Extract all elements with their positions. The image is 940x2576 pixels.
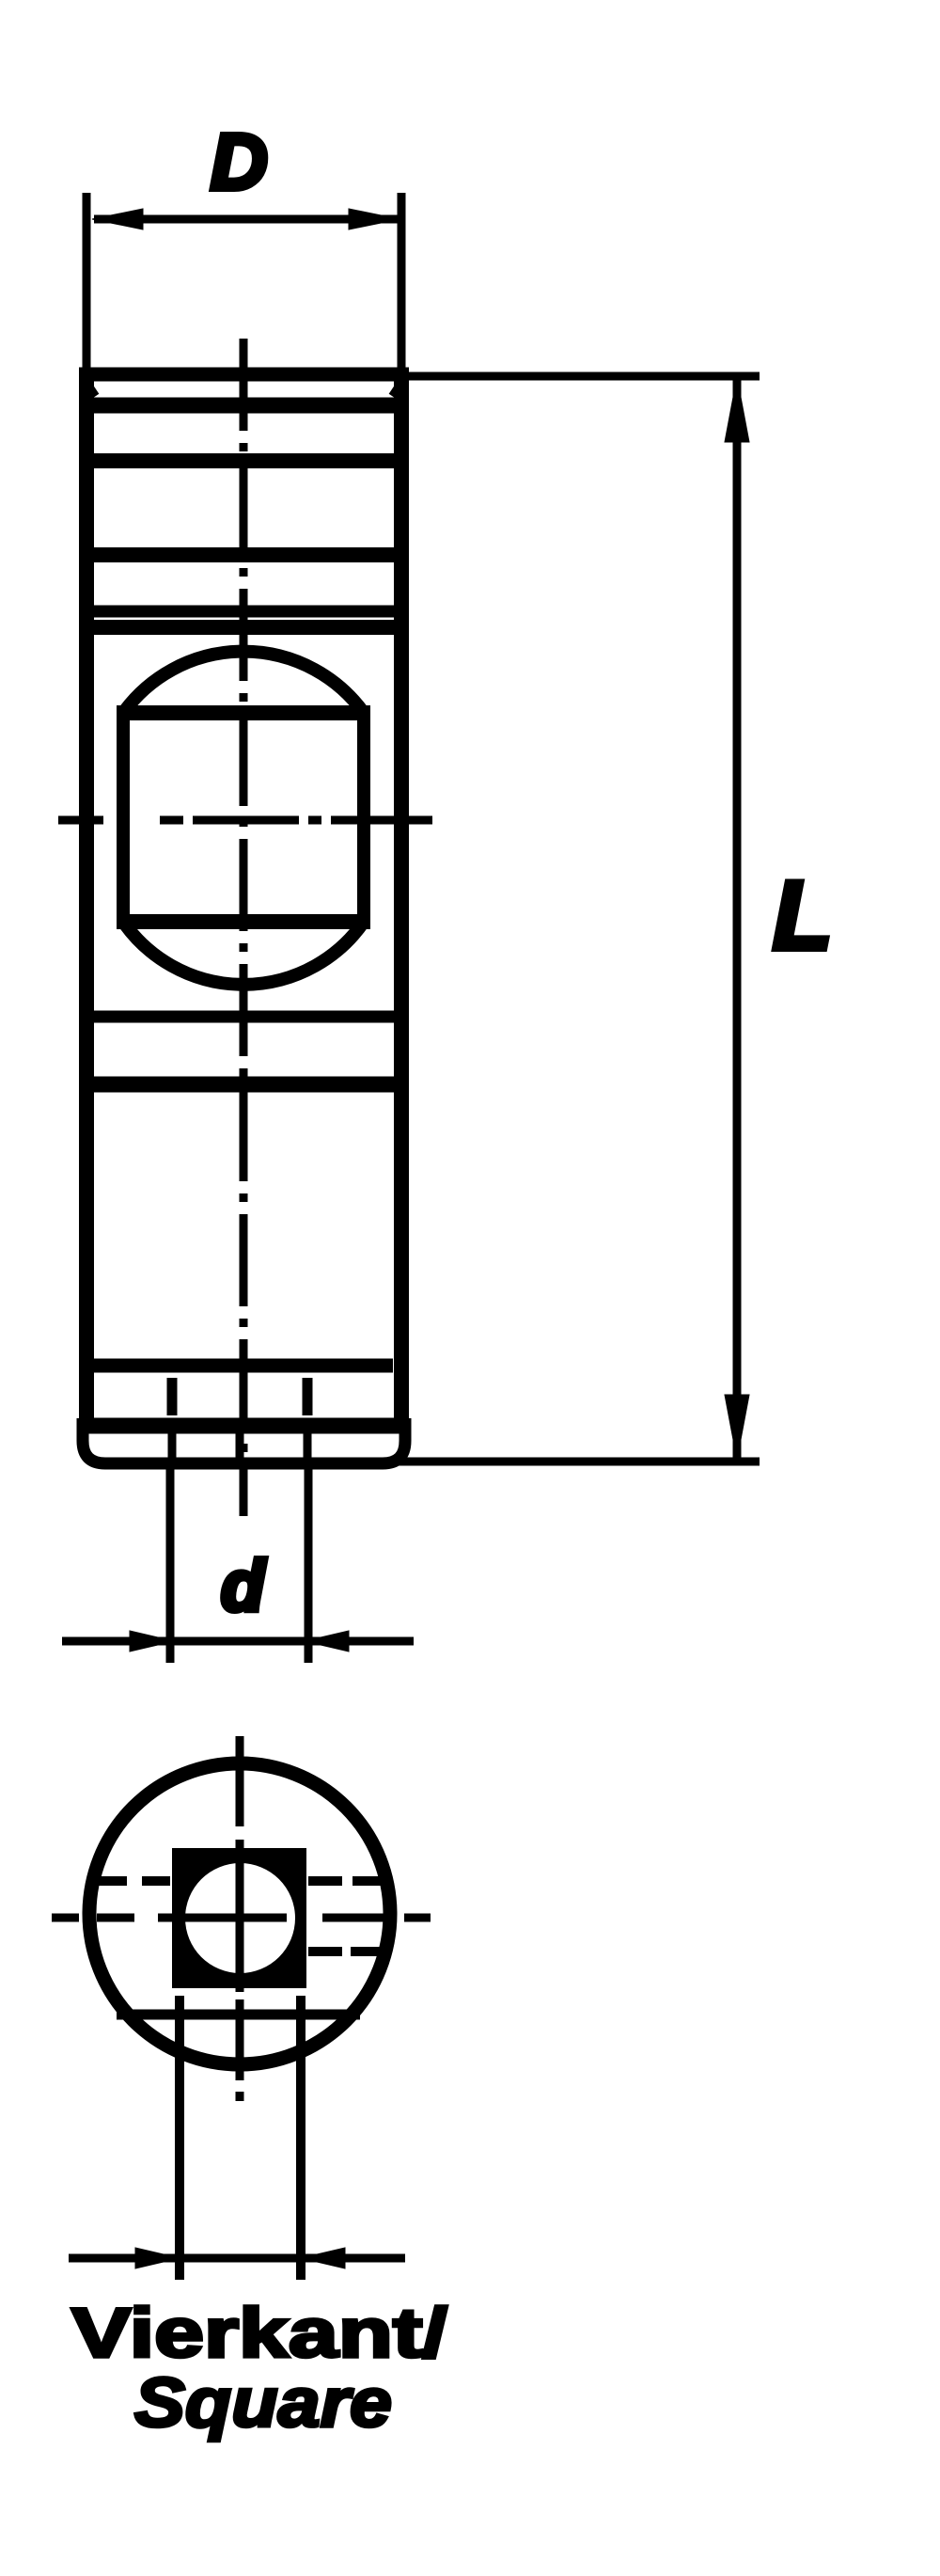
svg-text:L: L — [773, 861, 833, 971]
svg-text:Vierkant/: Vierkant/ — [71, 2294, 447, 2372]
svg-text:d: d — [221, 1546, 266, 1626]
svg-text:Square: Square — [134, 2363, 392, 2442]
svg-text:D: D — [211, 118, 268, 206]
